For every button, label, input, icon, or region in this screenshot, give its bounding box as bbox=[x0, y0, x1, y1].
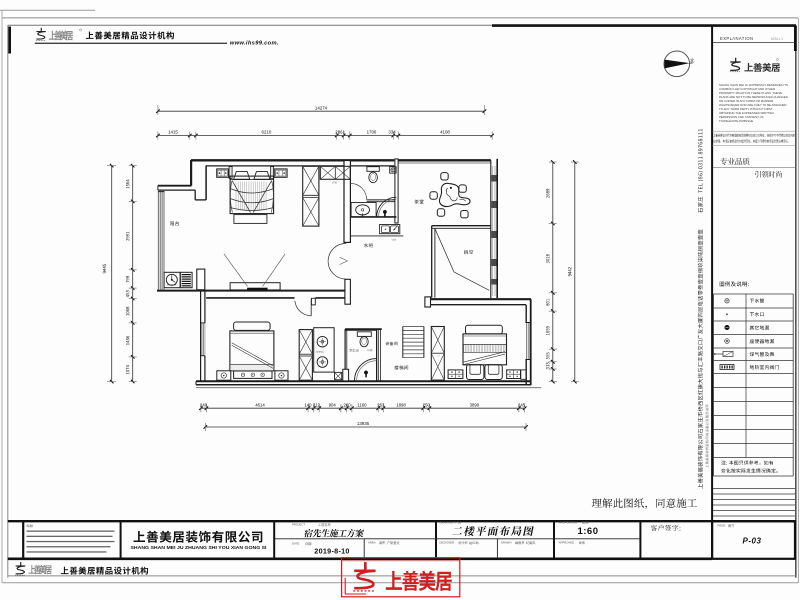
svg-text:DRAWN: DRAWN bbox=[501, 541, 511, 545]
svg-text:TOWELEVATE-PUBNSHE: TOWELEVATE-PUBNSHE bbox=[719, 119, 753, 123]
svg-text:DRAWING TITLE: DRAWING TITLE bbox=[440, 520, 462, 524]
svg-text:EXPLANATION: EXPLANATION bbox=[720, 36, 753, 41]
svg-text:1706: 1706 bbox=[367, 130, 377, 135]
svg-text:1:60: 1:60 bbox=[577, 526, 598, 537]
svg-text:3890: 3890 bbox=[470, 402, 480, 407]
svg-text:334: 334 bbox=[388, 130, 396, 135]
svg-text:PROJECT: PROJECT bbox=[292, 523, 305, 527]
svg-text:245: 245 bbox=[518, 402, 526, 407]
svg-text:PAGE: PAGE bbox=[718, 524, 726, 528]
svg-text:312: 312 bbox=[313, 402, 321, 407]
svg-text:14274: 14274 bbox=[315, 105, 328, 110]
svg-text:4614: 4614 bbox=[255, 402, 265, 407]
svg-text:APPROVED: APPROVED bbox=[559, 541, 575, 545]
svg-text:1898: 1898 bbox=[396, 402, 406, 407]
svg-text:260: 260 bbox=[344, 402, 352, 407]
svg-text:P-03: P-03 bbox=[743, 537, 762, 546]
svg-text:240: 240 bbox=[200, 402, 208, 407]
svg-text:www.ihs99.com.: www.ihs99.com. bbox=[230, 40, 279, 46]
svg-text:250: 250 bbox=[423, 402, 431, 407]
svg-text:MISLL 4: MISLL 4 bbox=[771, 37, 783, 41]
svg-text:DATE: DATE bbox=[292, 542, 299, 546]
svg-text:Valk: Valk bbox=[392, 238, 398, 242]
svg-text:2019-8-10: 2019-8-10 bbox=[314, 547, 349, 556]
svg-text:904: 904 bbox=[329, 402, 337, 407]
svg-text:13936: 13936 bbox=[357, 421, 370, 426]
svg-text:AREA: AREA bbox=[368, 541, 376, 545]
svg-text:2861: 2861 bbox=[335, 130, 345, 135]
svg-text:4108: 4108 bbox=[440, 130, 450, 135]
svg-text:1160: 1160 bbox=[357, 402, 367, 407]
svg-text:140: 140 bbox=[304, 402, 312, 407]
svg-text:PROPORTION: PROPORTION bbox=[559, 520, 578, 524]
svg-text:263: 263 bbox=[377, 402, 385, 407]
svg-text:1415: 1415 bbox=[168, 130, 178, 135]
svg-text:SHANG SHAN MEI JU ZHUANG SHI Y: SHANG SHAN MEI JU ZHUANG SHI YOU XIAN GO… bbox=[131, 545, 267, 550]
svg-text:6210: 6210 bbox=[262, 130, 272, 135]
svg-text:DESIGNER: DESIGNER bbox=[440, 541, 455, 545]
